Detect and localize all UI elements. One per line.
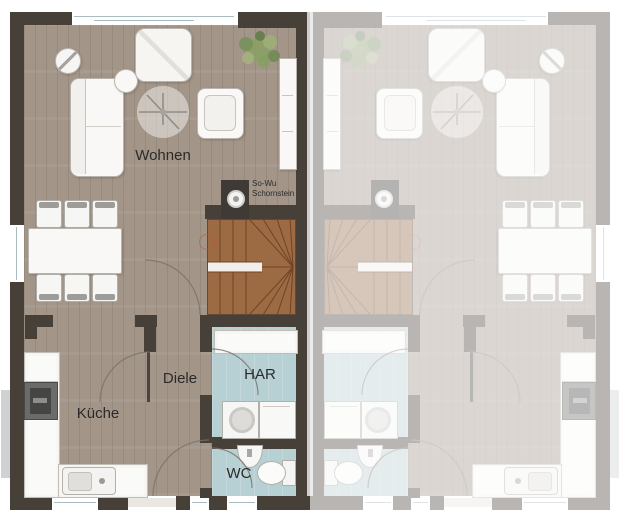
exterior-window-sill [610, 390, 619, 478]
exterior-window-sill [1, 390, 10, 478]
room-label-living: Wohnen [133, 147, 193, 165]
unit-right-slot-mirrored: So-Wu Schornstein [310, 12, 610, 510]
door-arcs [10, 12, 310, 510]
floor-plan-canvas: So-Wu Schornstein [0, 0, 620, 518]
room-label-wc: WC [217, 465, 261, 483]
unit-right-mirrored: So-Wu Schornstein [310, 12, 610, 510]
room-label-hall: Diele [152, 370, 208, 388]
room-label-kitchen: Küche [70, 405, 126, 423]
unit-left: So-Wu Schornstein [10, 12, 310, 510]
room-label-utility: HAR [236, 366, 284, 384]
unit-left-slot: So-Wu Schornstein [10, 12, 310, 510]
door-arcs [310, 12, 610, 510]
